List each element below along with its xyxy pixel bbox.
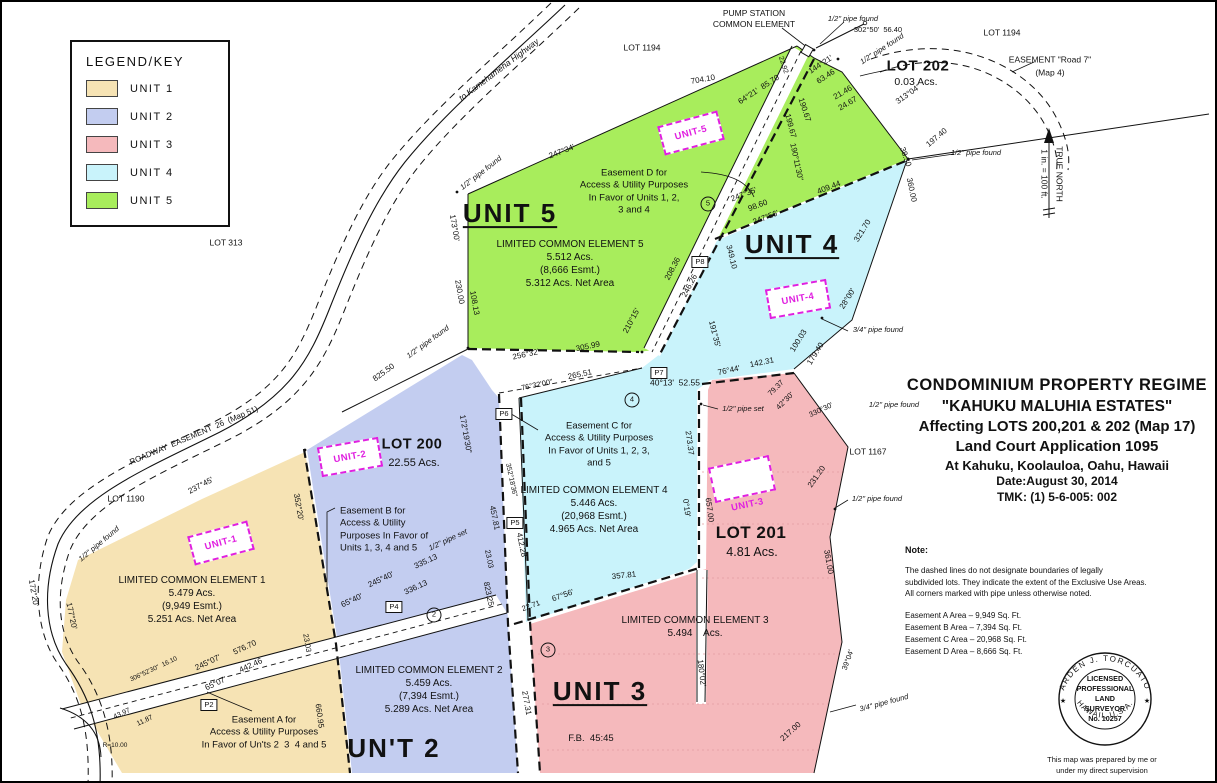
stamp-text-line: PROFESSIONAL xyxy=(1065,684,1145,694)
circle-3: 3 xyxy=(541,643,556,658)
legend-swatch xyxy=(86,192,118,209)
title-line: Date:August 30, 2014 xyxy=(902,474,1212,490)
legend-item-label: UNIT 2 xyxy=(130,111,174,123)
title-line: Land Court Application 1095 xyxy=(902,437,1212,457)
legend-swatch xyxy=(86,164,118,181)
stamp-text: LICENSEDPROFESSIONALLANDSURVEYORNo. 1025… xyxy=(1065,674,1145,724)
survey-map-page: ARDEN J. TORCUATO HAWAII, U.S.A. ★ ★ LEG… xyxy=(0,0,1217,783)
title-line: CONDOMINIUM PROPERTY REGIME xyxy=(902,375,1212,397)
legend-item-unit4: UNIT 4 xyxy=(86,164,214,181)
stamp-text-line: LAND xyxy=(1065,694,1145,704)
legend-item-unit5: UNIT 5 xyxy=(86,192,214,209)
legend-item-unit3: UNIT 3 xyxy=(86,136,214,153)
legend-swatch xyxy=(86,108,118,125)
legend-item-label: UNIT 5 xyxy=(130,195,174,207)
legend-swatch xyxy=(86,80,118,97)
note-heading: Note: xyxy=(905,545,1210,555)
note-easement-areas: Easement A Area – 9,949 Sq. Ft. Easement… xyxy=(905,610,1210,658)
stamp-text-line: LICENSED xyxy=(1065,674,1145,684)
legend-item-unit1: UNIT 1 xyxy=(86,80,214,97)
legend-swatch xyxy=(86,136,118,153)
legend-title: LEGEND/KEY xyxy=(86,54,214,69)
legend-item-unit2: UNIT 2 xyxy=(86,108,214,125)
title-block: CONDOMINIUM PROPERTY REGIME "KAHUKU MALU… xyxy=(902,375,1212,506)
circle-4: 4 xyxy=(625,393,640,408)
legend-item-label: UNIT 3 xyxy=(130,139,174,151)
stamp-text-line: No. 10257 xyxy=(1065,714,1145,724)
circle-5: 5 xyxy=(701,197,716,212)
title-line: At Kahuku, Koolauloa, Oahu, Hawaii xyxy=(902,457,1212,474)
stamp-text-line: SURVEYOR xyxy=(1065,704,1145,714)
note-block: Note: The dashed lines do not designate … xyxy=(905,545,1210,658)
circle-2: 2 xyxy=(427,608,442,623)
note-body: The dashed lines do not designate bounda… xyxy=(905,565,1210,600)
legend-box: LEGEND/KEY UNIT 1 UNIT 2 UNIT 3 UNIT 4 U… xyxy=(70,40,230,227)
legend-item-label: UNIT 1 xyxy=(130,83,174,95)
legend-items: UNIT 1 UNIT 2 UNIT 3 UNIT 4 UNIT 5 xyxy=(86,80,214,209)
title-line: Affecting LOTS 200,201 & 202 (Map 17) xyxy=(902,417,1212,437)
title-line: "KAHUKU MALUHIA ESTATES" xyxy=(902,397,1212,417)
legend-item-label: UNIT 4 xyxy=(130,167,174,179)
stamp-caption: This map was prepared by me or under my … xyxy=(1012,755,1192,776)
title-line: TMK: (1) 5-6-005: 002 xyxy=(902,490,1212,506)
